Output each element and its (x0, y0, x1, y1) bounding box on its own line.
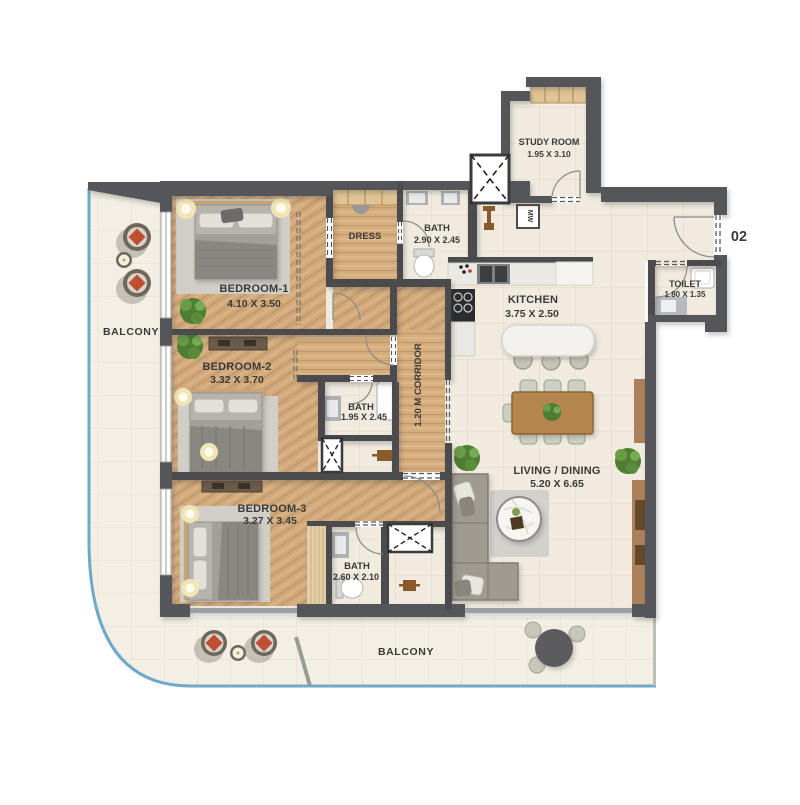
svg-text:DRESS: DRESS (349, 231, 382, 242)
svg-text:BEDROOM-3: BEDROOM-3 (237, 503, 306, 515)
svg-text:KITCHEN: KITCHEN (508, 294, 558, 306)
svg-text:1.80 X 1.35: 1.80 X 1.35 (665, 290, 706, 299)
svg-text:1.95 X 3.10: 1.95 X 3.10 (527, 149, 571, 159)
svg-text:2.60 X 2.10: 2.60 X 2.10 (333, 572, 379, 582)
svg-text:2.90 X 2.45: 2.90 X 2.45 (414, 235, 460, 245)
svg-text:5.20 X 6.65: 5.20 X 6.65 (530, 478, 584, 490)
svg-text:BEDROOM-2: BEDROOM-2 (202, 361, 271, 373)
svg-text:3.32 X 3.70: 3.32 X 3.70 (210, 374, 264, 386)
svg-text:3.27 X 3.45: 3.27 X 3.45 (243, 515, 297, 527)
svg-text:02: 02 (731, 229, 747, 245)
svg-text:BALCONY: BALCONY (103, 326, 159, 338)
svg-text:BATH: BATH (344, 561, 370, 572)
svg-text:1.95 X 2.45: 1.95 X 2.45 (341, 412, 387, 422)
svg-text:MW: MW (526, 210, 533, 223)
svg-text:BATH: BATH (424, 223, 450, 234)
svg-text:BEDROOM-1: BEDROOM-1 (219, 283, 288, 295)
svg-text:3.75 X 2.50: 3.75 X 2.50 (505, 308, 559, 320)
svg-text:TOILET: TOILET (669, 279, 701, 289)
svg-text:STUDY ROOM: STUDY ROOM (519, 137, 580, 147)
svg-text:BALCONY: BALCONY (378, 646, 434, 658)
svg-text:4.10 X 3.50: 4.10 X 3.50 (227, 298, 281, 310)
svg-text:LIVING / DINING: LIVING / DINING (513, 465, 600, 477)
svg-text:1.20 M CORRIDOR: 1.20 M CORRIDOR (413, 343, 424, 427)
